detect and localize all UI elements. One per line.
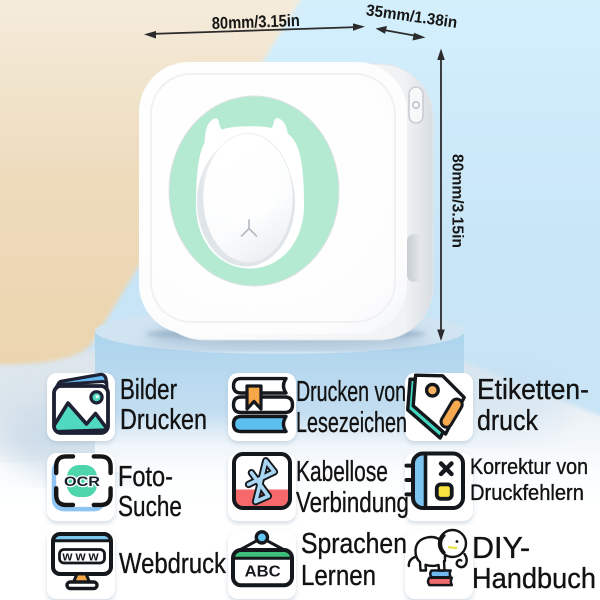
svg-text:Handbuch: Handbuch bbox=[472, 562, 596, 594]
svg-text:Webdruck: Webdruck bbox=[119, 547, 227, 580]
svg-text:Korrektur von: Korrektur von bbox=[470, 455, 588, 479]
svg-text:DIY-: DIY- bbox=[472, 531, 530, 565]
svg-text:Etiketten-: Etiketten- bbox=[477, 373, 589, 405]
svg-text:www: www bbox=[61, 549, 101, 564]
svg-text:80mm/3.15in: 80mm/3.15in bbox=[212, 11, 301, 33]
svg-text:ABC: ABC bbox=[245, 564, 281, 581]
svg-text:Suche: Suche bbox=[118, 489, 182, 522]
svg-text:druck: druck bbox=[477, 404, 538, 436]
svg-text:Foto-: Foto- bbox=[118, 460, 173, 493]
svg-text:OCR: OCR bbox=[64, 473, 100, 489]
svg-text:Bilder: Bilder bbox=[120, 374, 177, 405]
svg-text:Drucken: Drucken bbox=[120, 403, 207, 436]
svg-text:Kabellose: Kabellose bbox=[296, 456, 388, 488]
svg-text:Lernen: Lernen bbox=[301, 559, 376, 592]
svg-text:80mm/3.15in: 80mm/3.15in bbox=[449, 154, 466, 248]
svg-text:Drucken von: Drucken von bbox=[296, 376, 406, 408]
svg-text:Druckfehlern: Druckfehlern bbox=[470, 481, 584, 505]
svg-text:Lesezeichen: Lesezeichen bbox=[296, 407, 407, 439]
svg-text:Verbindung: Verbindung bbox=[296, 487, 409, 518]
svg-text:Sprachen: Sprachen bbox=[301, 527, 407, 559]
